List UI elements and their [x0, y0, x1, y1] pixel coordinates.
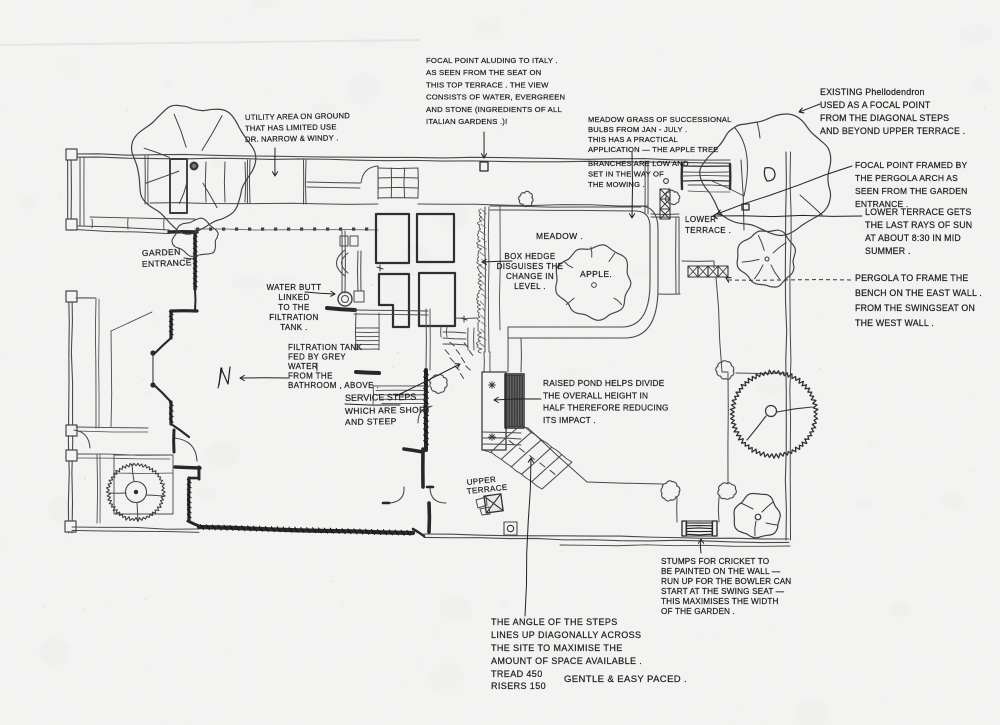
svg-text:AND BEYOND UPPER TERRACE .: AND BEYOND UPPER TERRACE .	[820, 126, 965, 136]
svg-text:RISERS 150: RISERS 150	[491, 681, 546, 691]
svg-text:ITS IMPACT .: ITS IMPACT .	[543, 415, 596, 425]
svg-text:DISGUISES THE: DISGUISES THE	[497, 262, 564, 271]
svg-text:THE OVERALL HEIGHT IN: THE OVERALL HEIGHT IN	[543, 390, 648, 400]
svg-text:THIS TOP TERRACE . THE VIEW: THIS TOP TERRACE . THE VIEW	[426, 80, 549, 89]
svg-text:AS SEEN FROM THE SEAT ON: AS SEEN FROM THE SEAT ON	[426, 68, 541, 77]
svg-text:THIS MAXIMISES THE WIDTH: THIS MAXIMISES THE WIDTH	[661, 597, 779, 606]
svg-text:BATHROOM , ABOVE .: BATHROOM , ABOVE .	[288, 381, 379, 390]
svg-text:APPLICATION — THE APPLE TREE: APPLICATION — THE APPLE TREE	[588, 145, 719, 154]
svg-text:FOCAL POINT ALUDING TO ITALY .: FOCAL POINT ALUDING TO ITALY .	[426, 56, 558, 65]
svg-text:START AT THE SWING SEAT —: START AT THE SWING SEAT —	[661, 587, 785, 596]
svg-text:AND STONE (INGREDIENTS OF ALL: AND STONE (INGREDIENTS OF ALL	[426, 105, 562, 114]
svg-text:ENTRANCE .: ENTRANCE .	[142, 257, 198, 269]
svg-text:DR. NARROW & WINDY .: DR. NARROW & WINDY .	[245, 133, 339, 144]
svg-text:WATER: WATER	[288, 362, 318, 371]
svg-text:TO THE: TO THE	[278, 303, 309, 312]
svg-text:BULBS FROM JAN - JULY .: BULBS FROM JAN - JULY .	[588, 125, 687, 134]
svg-text:GARDEN: GARDEN	[142, 247, 181, 258]
svg-text:BE PAINTED ON THE WALL —: BE PAINTED ON THE WALL —	[661, 567, 781, 576]
svg-text:STUMPS FOR CRICKET TO: STUMPS FOR CRICKET TO	[661, 557, 769, 566]
svg-text:BENCH ON THE EAST WALL .: BENCH ON THE EAST WALL .	[855, 288, 982, 298]
svg-text:AND STEEP: AND STEEP	[345, 416, 397, 427]
svg-text:BOX HEDGE: BOX HEDGE	[504, 252, 555, 261]
svg-text:GENTLE & EASY PACED .: GENTLE & EASY PACED .	[564, 674, 687, 685]
svg-text:BRANCHES ARE LOW AND: BRANCHES ARE LOW AND	[588, 159, 689, 168]
svg-text:TANK .: TANK .	[280, 323, 308, 332]
svg-text:WATER BUTT: WATER BUTT	[266, 283, 321, 292]
svg-text:THAT HAS LIMITED USE: THAT HAS LIMITED USE	[245, 122, 337, 133]
svg-text:THE ANGLE OF THE STEPS: THE ANGLE OF THE STEPS	[491, 617, 618, 627]
svg-text:THIS HAS A PRACTICAL: THIS HAS A PRACTICAL	[588, 135, 678, 144]
svg-text:OF THE GARDEN .: OF THE GARDEN .	[661, 607, 735, 616]
svg-text:PERGOLA TO FRAME THE: PERGOLA TO FRAME THE	[855, 273, 969, 283]
svg-text:TERRACE .: TERRACE .	[685, 226, 731, 235]
svg-text:THE MOWING .: THE MOWING .	[588, 180, 645, 189]
svg-text:CONSISTS OF WATER, EVERGREEN: CONSISTS OF WATER, EVERGREEN	[426, 93, 565, 102]
svg-text:FROM THE SWINGSEAT ON: FROM THE SWINGSEAT ON	[855, 303, 975, 313]
svg-text:LOWER: LOWER	[685, 215, 716, 224]
svg-text:THE WEST WALL .: THE WEST WALL .	[855, 318, 934, 328]
svg-text:SUMMER .: SUMMER .	[865, 246, 911, 256]
svg-text:APPLE.: APPLE.	[580, 269, 612, 279]
svg-text:AT ABOUT 8:30 IN MID: AT ABOUT 8:30 IN MID	[865, 233, 961, 243]
svg-text:FED BY GREY: FED BY GREY	[288, 353, 346, 362]
svg-text:LEVEL .: LEVEL .	[514, 282, 546, 291]
svg-text:EXISTING Phellodendron: EXISTING Phellodendron	[820, 87, 925, 97]
svg-text:AMOUNT OF SPACE AVAILABLE .: AMOUNT OF SPACE AVAILABLE .	[491, 656, 642, 666]
svg-text:THE SITE TO MAXIMISE THE: THE SITE TO MAXIMISE THE	[491, 643, 623, 653]
svg-text:FROM THE: FROM THE	[288, 372, 333, 381]
svg-text:FOCAL POINT FRAMED BY: FOCAL POINT FRAMED BY	[855, 160, 967, 170]
svg-text:RUN UP FOR THE BOWLER CAN: RUN UP FOR THE BOWLER CAN	[661, 577, 791, 586]
svg-text:FROM THE DIAGONAL STEPS: FROM THE DIAGONAL STEPS	[820, 113, 949, 123]
svg-text:THE LAST RAYS OF SUN: THE LAST RAYS OF SUN	[865, 220, 972, 230]
svg-text:USED AS A FOCAL POINT: USED AS A FOCAL POINT	[820, 100, 931, 110]
svg-text:MEADOW GRASS OF SUCCESSIONAL: MEADOW GRASS OF SUCCESSIONAL	[588, 115, 732, 124]
svg-text:TREAD 450: TREAD 450	[491, 669, 543, 679]
svg-text:SET IN THE WAY OF: SET IN THE WAY OF	[588, 170, 664, 179]
svg-text:WHICH ARE SHORT: WHICH ARE SHORT	[345, 404, 431, 416]
svg-text:CHANGE IN: CHANGE IN	[506, 272, 554, 281]
svg-text:MEADOW .: MEADOW .	[536, 231, 583, 241]
svg-text:UTILITY AREA ON GROUND: UTILITY AREA ON GROUND	[245, 111, 350, 122]
svg-text:SERVICE STEPS: SERVICE STEPS	[345, 392, 417, 403]
svg-text:LOWER TERRACE GETS: LOWER TERRACE GETS	[865, 207, 972, 217]
svg-text:HALF THEREFORE REDUCING: HALF THEREFORE REDUCING	[543, 403, 669, 413]
svg-text:RAISED POND HELPS DIVIDE: RAISED POND HELPS DIVIDE	[543, 378, 665, 388]
svg-text:LINES UP DIAGONALLY ACROSS: LINES UP DIAGONALLY ACROSS	[491, 630, 641, 640]
svg-text:THE PERGOLA ARCH AS: THE PERGOLA ARCH AS	[855, 173, 958, 183]
svg-text:ITALIAN GARDENS .)!: ITALIAN GARDENS .)!	[426, 117, 507, 126]
svg-text:LINKED: LINKED	[278, 293, 309, 302]
svg-text:SEEN FROM THE GARDEN: SEEN FROM THE GARDEN	[855, 186, 967, 196]
svg-text:FILTRATION TANK: FILTRATION TANK	[288, 343, 363, 352]
svg-text:FILTRATION: FILTRATION	[269, 313, 318, 322]
